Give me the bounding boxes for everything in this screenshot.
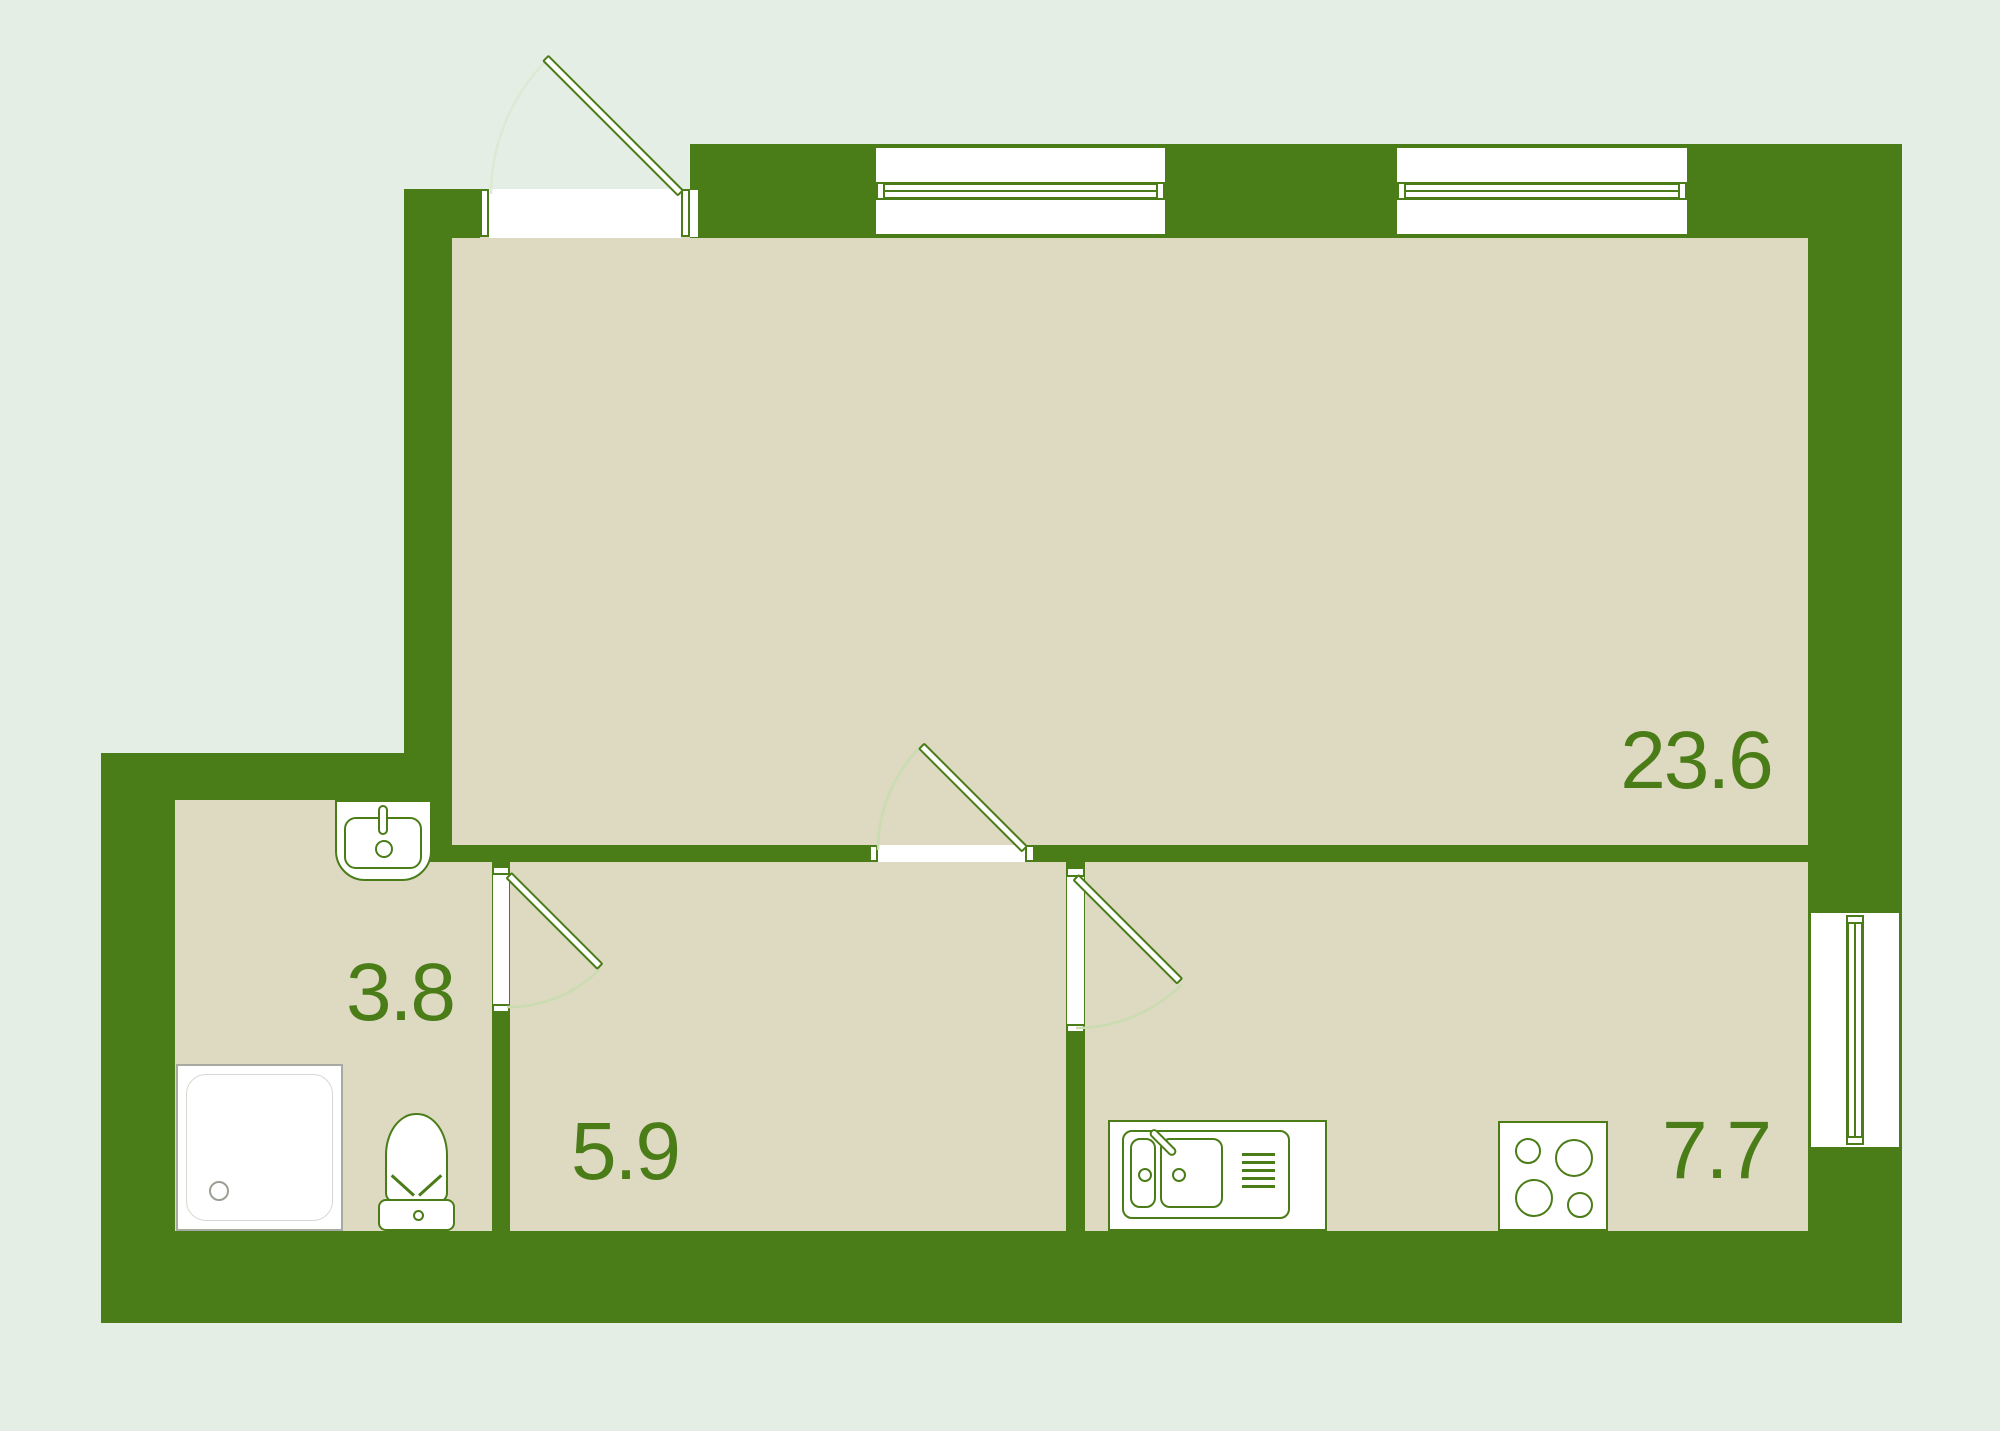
- toilet-bowl: [385, 1113, 448, 1203]
- wall-living-bottom: [452, 845, 1808, 862]
- toilet-button-icon: [413, 1210, 424, 1221]
- hallway-area-label: 5.9: [571, 1105, 679, 1199]
- shower-drain-icon: [209, 1181, 229, 1201]
- floor-plan: 23.6 3.8 5.9 7.7: [0, 0, 2000, 1431]
- door-jamb: [1066, 1024, 1085, 1033]
- window-glazing-line: [1861, 924, 1864, 1136]
- window-frame-cap: [1397, 182, 1406, 200]
- kitchen-sink-drain-icon: [1138, 1168, 1152, 1182]
- living-door-opening: [878, 845, 1025, 862]
- window-top-right: [1394, 145, 1690, 237]
- stove-fixture: [1498, 1121, 1608, 1231]
- wall-left-living: [404, 189, 452, 862]
- burner-icon: [1567, 1192, 1593, 1218]
- window-kitchen-right: [1808, 910, 1902, 1150]
- drainboard-line: [1242, 1161, 1275, 1164]
- window-top-left: [873, 145, 1168, 237]
- floor-main-rooms: [452, 237, 1808, 1231]
- window-glazing-line: [1854, 924, 1856, 1136]
- burner-icon: [1515, 1138, 1541, 1164]
- door-jamb: [480, 189, 489, 237]
- wall-outer-bottom: [101, 1231, 1902, 1323]
- wall-top-windowed: [690, 144, 1902, 238]
- sink-drain-icon: [375, 840, 393, 858]
- shower-inner-edge: [186, 1074, 333, 1221]
- window-glazing-line: [885, 182, 1156, 185]
- entrance-door-reveal: [690, 190, 698, 237]
- window-glazing-line: [1406, 197, 1678, 200]
- kitchen-sink-drain-icon: [1172, 1168, 1186, 1182]
- door-jamb: [492, 1004, 510, 1013]
- door-jamb: [869, 845, 878, 862]
- drainboard-line: [1242, 1169, 1275, 1172]
- window-frame-cap: [876, 182, 885, 200]
- window-frame-cap: [1678, 182, 1687, 200]
- window-frame-cap: [1846, 1136, 1864, 1145]
- bathroom-area-label: 3.8: [346, 946, 454, 1040]
- window-frame-cap: [1156, 182, 1165, 200]
- entrance-door-arc: [491, 60, 547, 194]
- toilet-tank: [378, 1199, 455, 1231]
- kitchen-area-label: 7.7: [1662, 1104, 1770, 1198]
- drainboard-line: [1242, 1153, 1275, 1156]
- entrance-door-opening: [489, 189, 681, 238]
- shower-tray-fixture: [176, 1064, 343, 1231]
- door-jamb: [681, 189, 690, 237]
- window-glazing-line: [1406, 190, 1678, 192]
- door-jamb: [492, 866, 510, 875]
- burner-icon: [1515, 1179, 1553, 1217]
- living-room-area-label: 23.6: [1620, 714, 1772, 808]
- bathroom-sink-fixture: [335, 800, 432, 881]
- window-glazing-line: [885, 190, 1156, 192]
- entrance-door-leaf: [542, 55, 684, 197]
- drainboard-line: [1242, 1177, 1275, 1180]
- kitchen-sink-fixture: [1108, 1120, 1327, 1231]
- bathroom-door-opening: [493, 874, 509, 1005]
- kitchen-door-opening: [1067, 876, 1084, 1025]
- burner-icon: [1555, 1139, 1593, 1177]
- sink-faucet-icon: [378, 805, 388, 835]
- window-frame-cap: [1846, 915, 1864, 924]
- window-glazing-line: [1406, 182, 1678, 185]
- drainboard-line: [1242, 1185, 1275, 1188]
- window-glazing-line: [1846, 924, 1849, 1136]
- window-glazing-line: [885, 197, 1156, 200]
